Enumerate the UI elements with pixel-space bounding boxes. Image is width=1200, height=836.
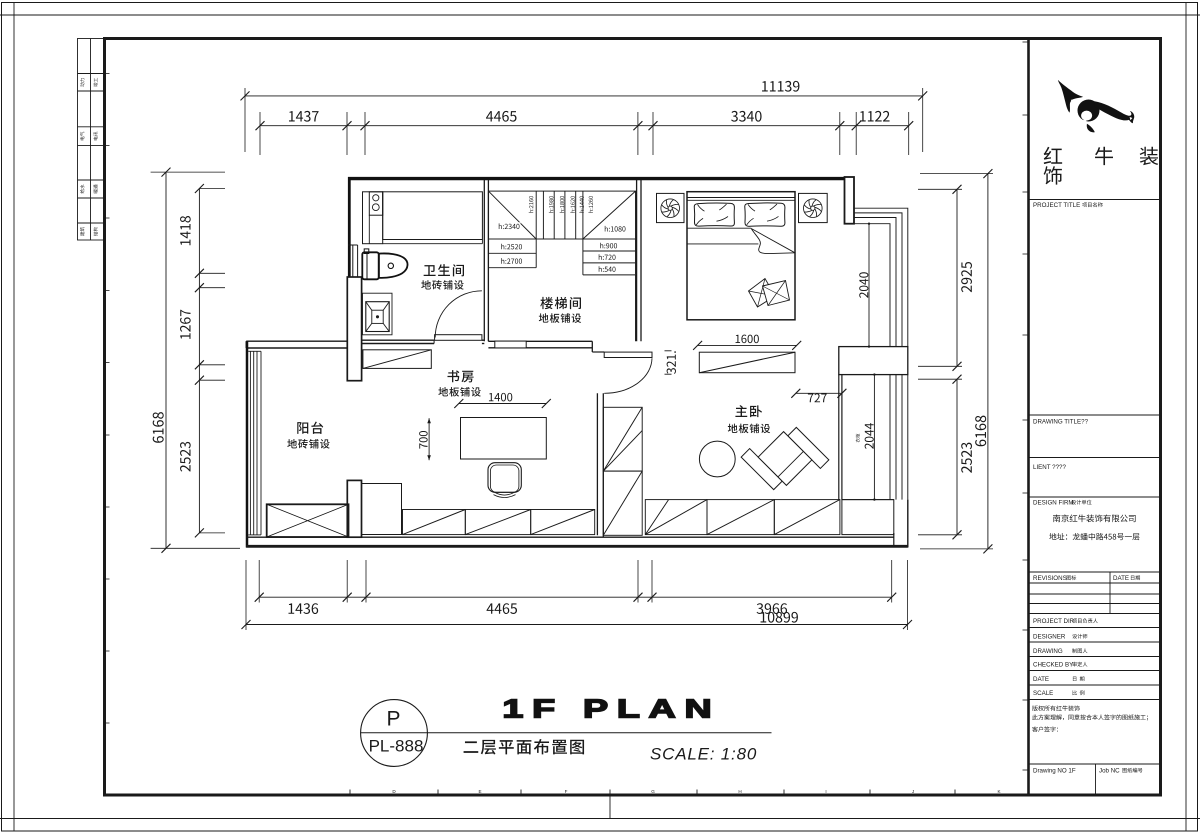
svg-text:DATE: DATE — [1113, 575, 1129, 582]
svg-text:PROJECT DIR: PROJECT DIR — [1033, 618, 1075, 625]
svg-text:PROJECT TITLE: PROJECT TITLE — [1033, 202, 1080, 209]
svg-text:G: G — [651, 789, 655, 794]
svg-text:E: E — [478, 789, 481, 794]
svg-text:DESIGNER: DESIGNER — [1033, 634, 1066, 641]
svg-text:P: P — [386, 708, 400, 731]
svg-text:1F PLAN: 1F PLAN — [502, 694, 720, 723]
svg-text:CHECKED BY: CHECKED BY — [1033, 662, 1073, 669]
svg-text:H: H — [738, 789, 741, 794]
svg-text:SCALE: SCALE — [1033, 690, 1053, 697]
svg-text:REVISIONS: REVISIONS — [1033, 575, 1067, 582]
svg-text:LIENT ????: LIENT ???? — [1033, 464, 1066, 471]
svg-text:J: J — [912, 789, 914, 794]
svg-text:Job NC: Job NC — [1099, 768, 1120, 775]
svg-text:F: F — [565, 789, 568, 794]
svg-text:DRAWING TITLE??: DRAWING TITLE?? — [1033, 419, 1089, 426]
svg-text:DATE: DATE — [1033, 676, 1049, 683]
svg-text:DESIGN FIRM: DESIGN FIRM — [1033, 500, 1074, 507]
svg-text:PL-888: PL-888 — [369, 737, 424, 756]
svg-text:DRAWING: DRAWING — [1033, 648, 1063, 655]
svg-text:I: I — [825, 789, 826, 794]
svg-text:SCALE: 1:80: SCALE: 1:80 — [650, 745, 757, 764]
svg-text:Drawing NO 1F: Drawing NO 1F — [1033, 768, 1076, 775]
